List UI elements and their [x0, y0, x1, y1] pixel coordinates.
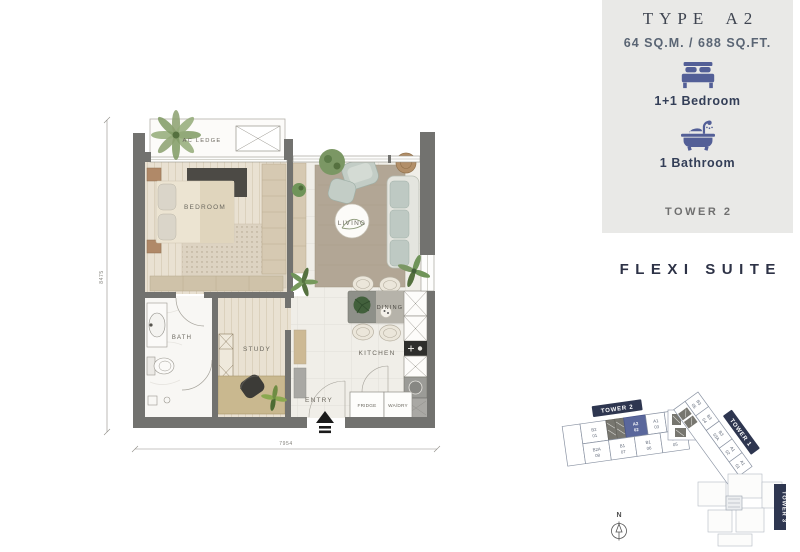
- unit-b1-06: [634, 433, 663, 456]
- dining-chair: [353, 324, 374, 340]
- highlighted-unit-a2-02: [624, 415, 649, 438]
- suite-name: FLEXI SUITE: [602, 261, 793, 278]
- height-dimension: 8475: [99, 270, 105, 284]
- plant: [292, 183, 306, 197]
- tower-label: TOWER 2: [602, 206, 793, 218]
- width-dimension: 7954: [279, 441, 293, 447]
- unit-type-title: TYPE A2: [602, 0, 793, 29]
- bedroom-feature: 1+1 Bedroom: [602, 62, 793, 108]
- plant: [319, 149, 345, 175]
- bedroom-label: BEDROOM: [184, 204, 226, 211]
- kitchen-label: KITCHEN: [359, 350, 396, 357]
- nightstand: [147, 168, 161, 181]
- unit-b2a-08: [583, 440, 612, 463]
- tower3-outline: [698, 474, 782, 546]
- entry-cabinet: [294, 330, 306, 364]
- north-compass: N: [612, 512, 627, 541]
- pillow: [158, 184, 176, 210]
- washer-dryer-label: WA/DRY: [388, 403, 408, 408]
- north-label: N: [616, 512, 621, 519]
- unit-area: 64 SQ.M. / 688 SQ.FT.: [602, 36, 793, 50]
- unit-info-panel: TYPE A2 64 SQ.M. / 688 SQ.FT. 1+1 Bedroo…: [602, 0, 793, 233]
- shoe-cabinet: [294, 368, 306, 398]
- bathroom-count: 1 Bathroom: [602, 156, 793, 170]
- cooktop: [404, 341, 427, 356]
- ac-ledge-label: AC LEDGE: [183, 138, 222, 144]
- dining-label: DINING: [377, 305, 403, 311]
- floor-plan-drawing: AC LEDGE BEDROOM LIVING BATH STUDY DININ…: [0, 0, 560, 552]
- bed-icon: [678, 62, 718, 89]
- console: [150, 276, 283, 291]
- living-label: LIVING: [338, 220, 367, 227]
- study-label: STUDY: [243, 346, 271, 353]
- bedroom-count: 1+1 Bedroom: [602, 94, 793, 108]
- bed-duvet: [200, 181, 234, 243]
- floorplan-page: AC LEDGE BEDROOM LIVING BATH STUDY DININ…: [0, 0, 800, 552]
- bathroom-feature: 1 Bathroom: [602, 120, 793, 170]
- bathtub-icon: [681, 120, 715, 151]
- dining-chair: [380, 277, 401, 293]
- dining-chair: [353, 276, 374, 292]
- tower3-label: TOWER 3: [781, 491, 787, 523]
- key-plan: B2 01 B2A 08 A2 02 A1 03 A1 03A B1 07 B1…: [548, 386, 800, 552]
- fridge-label: FRIDGE: [358, 403, 377, 408]
- unit-b2-01: [580, 420, 609, 443]
- unit-a1-03: [645, 412, 667, 434]
- hall-cabinet: [293, 163, 306, 273]
- wardrobe: [262, 164, 286, 274]
- dining-chair: [380, 325, 401, 341]
- pillow: [158, 214, 176, 240]
- entry-label: ENTRY: [305, 397, 333, 404]
- palm-plant: [151, 110, 201, 160]
- bath-label: BATH: [172, 335, 192, 341]
- north-needle: [616, 524, 622, 532]
